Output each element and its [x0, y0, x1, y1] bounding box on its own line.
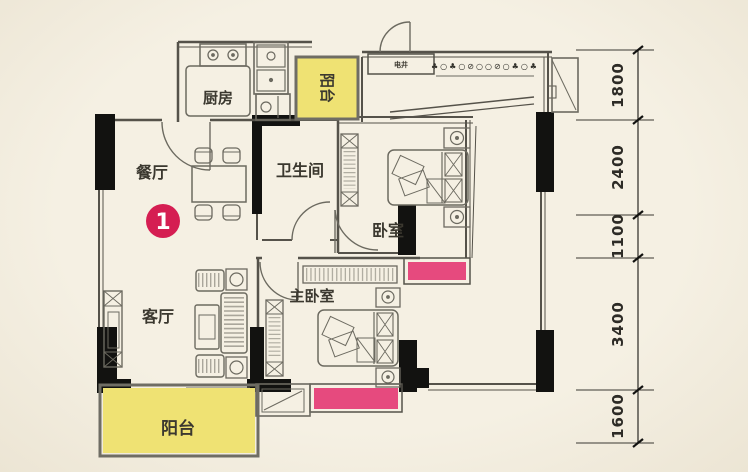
- wardrobe: [341, 134, 358, 206]
- balcony-bottom-label: 阳台: [161, 418, 195, 439]
- dimension-label: 1100: [609, 213, 627, 259]
- window-accents: [310, 258, 470, 412]
- side-table: [226, 269, 247, 290]
- dining-chair: [223, 205, 240, 220]
- living-room-furniture: [104, 269, 247, 378]
- kitchen-label: 厨房: [203, 89, 233, 107]
- armchair: [196, 270, 224, 291]
- dining-chair: [223, 148, 240, 163]
- unit-badge-number: 1: [155, 210, 170, 235]
- bathroom-door-arc: [292, 202, 330, 240]
- master-bedroom-furniture: [266, 266, 400, 387]
- side-table: [226, 357, 247, 378]
- master-bedroom-label: 主卧室: [289, 287, 334, 305]
- structural-columns: [95, 112, 554, 393]
- dimension-label: 2400: [609, 144, 627, 190]
- unit-badge: 1: [146, 204, 180, 238]
- dining-set: [192, 148, 246, 220]
- balcony-top-label: 阳台: [318, 73, 336, 103]
- decor-row: ♣○♣○⊘○○⊘○♣○♣: [431, 62, 539, 71]
- wardrobe: [266, 300, 283, 376]
- dining-label: 餐厅: [135, 163, 168, 182]
- ac-platform-bottom: [256, 384, 310, 416]
- dimension-ruler: 1800 2400 1100 3400 1600: [576, 46, 654, 447]
- interior-walls: [115, 117, 476, 385]
- bedroom-label: 卧室: [372, 221, 404, 240]
- armchair: [196, 355, 224, 377]
- bedroom-window: [408, 262, 466, 280]
- corridor-door-arc: [380, 22, 410, 52]
- wardrobe: [303, 266, 397, 283]
- living-label: 客厅: [142, 307, 174, 326]
- dimension-label: 1800: [609, 62, 627, 108]
- dining-chair: [195, 205, 212, 220]
- nightstand: [376, 288, 400, 307]
- master-bedroom-window: [314, 388, 398, 409]
- dimension-label: 1600: [609, 393, 627, 439]
- sink-icon: [254, 42, 288, 94]
- bed: [318, 310, 398, 366]
- bed: [388, 150, 468, 205]
- sofa: [221, 293, 247, 353]
- kitchen-fixtures: [186, 42, 290, 120]
- ac-platform-right: [552, 58, 578, 112]
- floor-plan: 1800 2400 1100 3400 1600 1 厨房 餐厅 客厅 卫生间 …: [0, 0, 748, 472]
- coffee-table: [195, 305, 219, 349]
- floor-plan-drawing: 1800 2400 1100 3400 1600 1 厨房 餐厅 客厅 卫生间 …: [0, 0, 748, 472]
- dimension-label: 3400: [609, 301, 627, 347]
- dining-table: [192, 166, 246, 202]
- electric-shaft-label: 电井: [394, 60, 408, 69]
- bathroom-label: 卫生间: [276, 161, 324, 180]
